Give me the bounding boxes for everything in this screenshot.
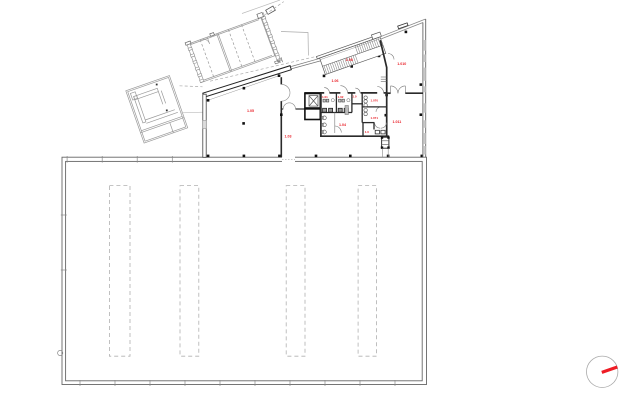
- svg-text:1.06: 1.06: [332, 79, 339, 83]
- svg-text:1.010: 1.010: [397, 62, 406, 66]
- svg-text:1.0: 1.0: [352, 94, 357, 98]
- svg-text:1.08: 1.08: [346, 58, 353, 62]
- svg-text:1.03: 1.03: [285, 134, 292, 138]
- svg-text:1.04: 1.04: [339, 123, 346, 127]
- svg-text:1.070: 1.070: [371, 99, 379, 103]
- svg-text:1.0: 1.0: [365, 130, 370, 134]
- svg-text:1.071: 1.071: [371, 116, 379, 120]
- svg-text:1.011: 1.011: [393, 120, 402, 124]
- svg-text:1.05: 1.05: [247, 109, 254, 113]
- svg-text:1.01: 1.01: [322, 95, 328, 99]
- svg-text:1.02: 1.02: [338, 95, 344, 99]
